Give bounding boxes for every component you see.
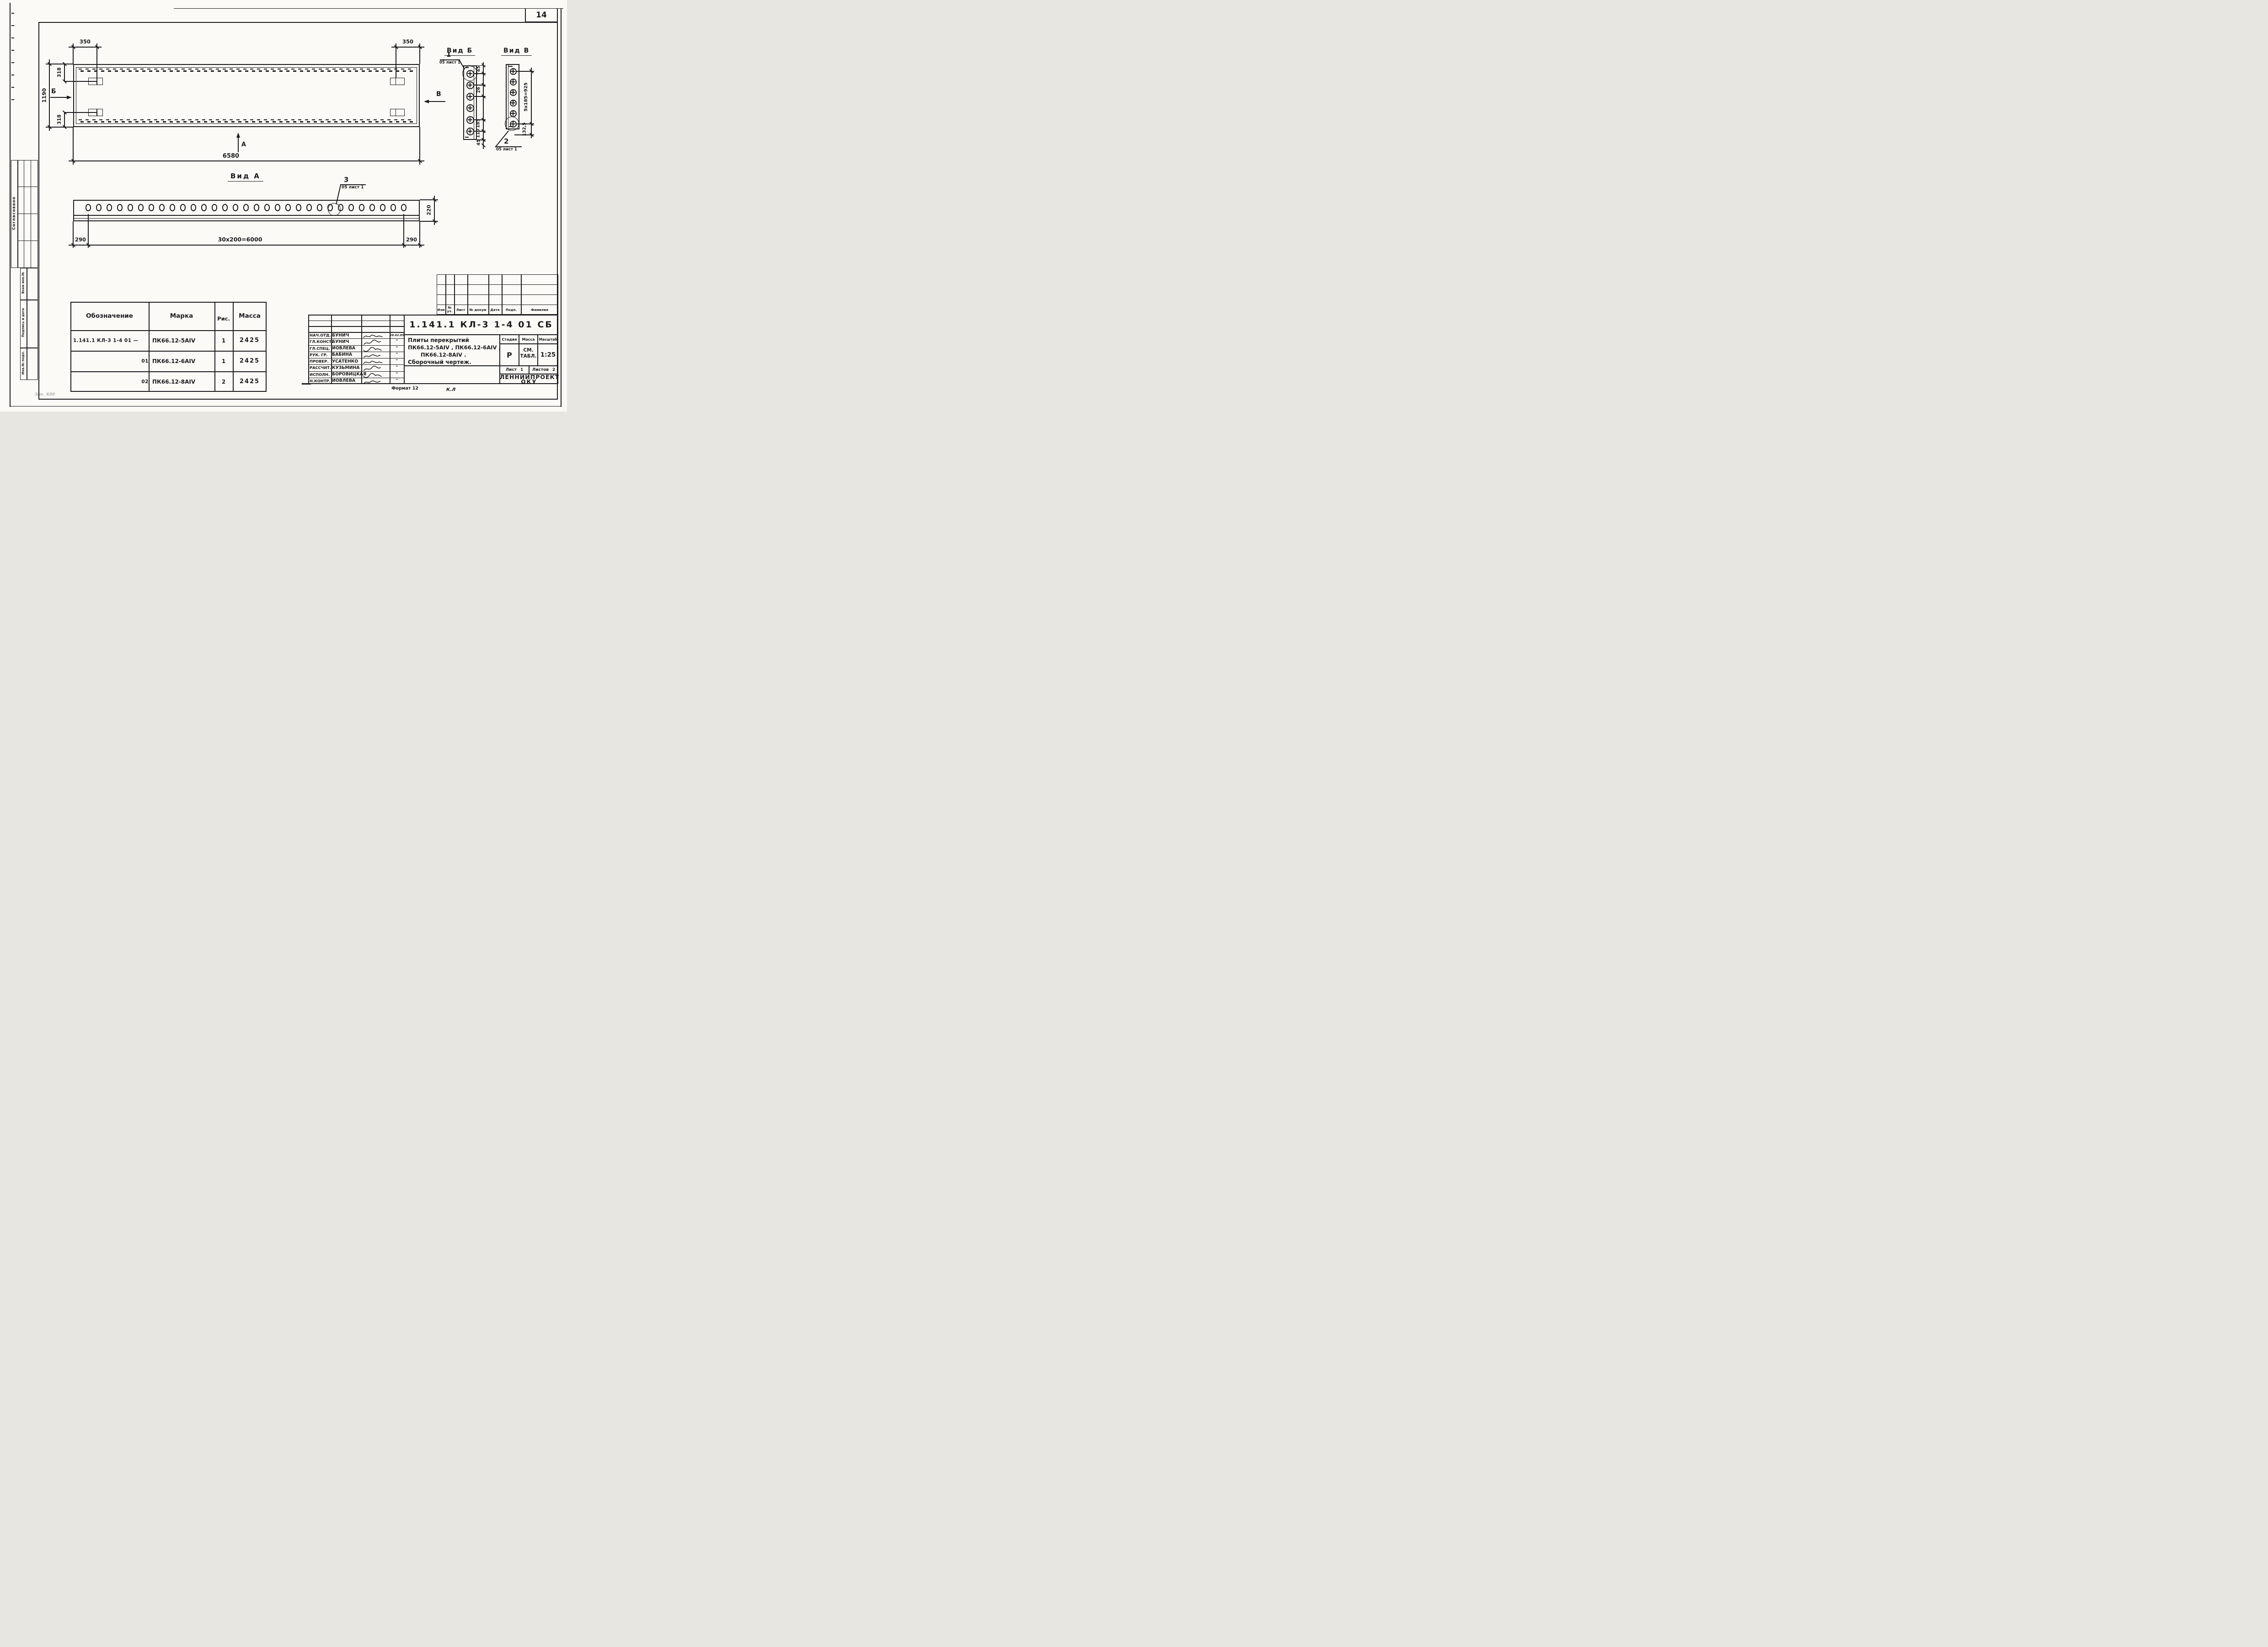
vid-a-hole — [149, 204, 155, 211]
sheet-edge-bottom — [10, 406, 561, 406]
staff-role: РУК. ГР. — [310, 352, 331, 358]
sheet-edge-top — [174, 8, 563, 9]
vid-a-hole — [96, 204, 102, 211]
staff-date: " — [390, 338, 404, 345]
sidebar-inv-divider — [27, 348, 27, 380]
dim-350-right: 350 — [396, 39, 420, 45]
staff-name: БУНИЧ — [332, 338, 360, 345]
staff-date: " — [390, 352, 404, 358]
binding-mark — [11, 25, 14, 26]
staff-name: ИОВЛЕВА — [332, 345, 360, 352]
tb-sheets-label: Листов — [532, 368, 549, 372]
dim-318-top: 318 — [57, 61, 62, 84]
vid-b-dim-label: 45 — [476, 134, 481, 152]
detail-2-ref: 05 лист 1 — [496, 148, 517, 152]
parts-cell: 1.141.1 КЛ-3 1-4 01 — — [70, 330, 151, 351]
tb-doc-name-line: Сборочный чертеж. — [408, 358, 497, 366]
lifting-loop — [390, 109, 405, 116]
tb-mass-label: Масса — [519, 335, 538, 344]
vid-v-dim-pitch: 5х185=925 — [524, 79, 529, 115]
detail-1-ref: 05 лист 1 — [439, 61, 460, 65]
vid-a-hole — [170, 204, 176, 211]
staff-role: Н.КОНТР. — [310, 378, 331, 384]
vid-a-hole — [128, 204, 134, 211]
revision-header: Подп. — [502, 305, 521, 315]
vid-b-hole — [466, 81, 474, 89]
parts-cell: 2425 — [233, 351, 267, 371]
section-arrow-b-head — [67, 96, 72, 99]
vid-a-dim-pitch: 30х200=6000 — [213, 237, 267, 243]
dim-line — [49, 59, 50, 131]
section-label-b: Б — [51, 88, 56, 95]
plan-slab-inner-line — [76, 67, 417, 124]
revision-header: Фамилия — [521, 305, 558, 315]
parts-cell: 1 — [214, 330, 233, 351]
dim-line — [73, 127, 73, 165]
detail-1-number: 1 — [446, 51, 451, 58]
vid-v-hole — [510, 79, 517, 86]
tb-sheet-label: Лист — [506, 368, 517, 372]
dim-line — [69, 245, 424, 246]
tb-stage-label: Стадия — [500, 335, 519, 344]
vid-b-hole — [466, 104, 474, 112]
parts-cell: ПК66.12-8АIV — [149, 371, 218, 392]
vid-a-title: Вид А — [228, 173, 263, 182]
dim-line — [64, 112, 64, 127]
dim-line — [64, 64, 64, 81]
parts-cell: ПК66.12-5АIV — [149, 330, 218, 351]
staff-date: " — [390, 378, 404, 384]
vid-b-corner-dash-bottom — [465, 137, 469, 138]
detail-2-number: 2 — [504, 138, 508, 145]
vid-v-corner-dash-top — [508, 66, 513, 67]
vid-a-hole — [201, 204, 207, 211]
revision-row-line — [437, 294, 558, 295]
staff-date: " — [390, 364, 404, 371]
staff-name: УСАТЕНКО — [332, 358, 360, 364]
vid-a-hole — [306, 204, 312, 211]
dim-line — [88, 214, 88, 248]
section-label-a: А — [241, 142, 246, 148]
vid-a-hole — [348, 204, 354, 211]
section-arrow-b-line — [50, 97, 67, 98]
dim-line — [396, 43, 396, 78]
tb-doc-name-line: ПК66.12-5АIV , ПК66.12-6АIV , — [408, 344, 497, 351]
dim-line — [419, 127, 420, 165]
illegible-stamp: Зак. 620 — [35, 392, 55, 397]
parts-cell: 2425 — [233, 371, 267, 392]
staff-empty-row-line — [308, 326, 404, 326]
tb-doc-name-line: Плиты перекрытий — [408, 337, 497, 344]
binding-mark — [11, 62, 14, 63]
vid-a-hole — [275, 204, 281, 211]
tb-mass-line2: ТАБЛ. — [519, 353, 538, 359]
binding-mark — [11, 75, 14, 75]
sheet-code-note: К.Л — [446, 388, 455, 392]
staff-name: БАБИНА — [332, 352, 360, 358]
vid-a-hole — [191, 204, 197, 211]
vid-b-dim-label: 45 — [476, 60, 481, 78]
parts-cell: 2425 — [233, 330, 267, 351]
section-arrow-v-line — [429, 101, 445, 102]
staff-role: ГЛ.СПЕЦ. — [310, 345, 331, 352]
dim-1190: 1190 — [42, 73, 47, 118]
vid-v-hole — [510, 89, 517, 96]
vid-b-hole — [466, 128, 474, 135]
section-label-v: В — [436, 91, 441, 97]
sheet-edge-right — [561, 8, 562, 407]
tb-stage-value: Р — [500, 344, 519, 366]
revision-header: № уч. — [445, 305, 454, 315]
staff-name: БОРОВИЦКАЯ — [332, 371, 360, 378]
castellation-pattern-top — [79, 69, 414, 72]
vid-v-hole — [510, 100, 517, 107]
vid-a-hole — [254, 204, 260, 211]
vid-a-dim-height: 220 — [427, 199, 432, 222]
vid-a-hole — [359, 204, 365, 211]
staff-date: 28.02.85 — [390, 332, 404, 338]
sidebar-podpis-label: Подпись и дата — [22, 300, 25, 346]
sidebar-vzam-divider — [27, 268, 27, 300]
sidebar-inv-label: Инв.№ подп. — [22, 340, 25, 386]
staff-empty-row-line — [308, 321, 404, 321]
vid-v-hole — [510, 110, 517, 117]
dim-line — [69, 160, 424, 161]
parts-header-designation: Обозначение — [70, 302, 149, 330]
staff-name: ИОВЛЕВА — [332, 378, 360, 384]
dim-line — [531, 68, 532, 138]
format-note: Формат 12 — [391, 386, 418, 391]
section-arrow-a-head — [236, 133, 240, 138]
vid-a-hole — [222, 204, 228, 211]
vid-a-hole — [159, 204, 165, 211]
dim-line — [483, 62, 484, 149]
dim-line — [403, 214, 404, 248]
sidebar-vzam-label: Взам инв.№ — [22, 260, 25, 306]
vid-v-title: Вид В — [501, 48, 532, 56]
staff-date: " — [390, 345, 404, 352]
tb-designation: 1.141.1 КЛ-3 1-4 01 СБ — [404, 315, 558, 335]
dim-350-left: 350 — [73, 39, 97, 45]
vid-a-hole — [296, 204, 302, 211]
revision-header: Лист — [454, 305, 467, 315]
tb-sheets-cell: Листов 2 — [529, 366, 558, 374]
vid-a-hole — [86, 204, 91, 211]
staff-role: НАЧ.ОТД. — [310, 332, 331, 338]
vid-a-hole — [243, 204, 249, 211]
binding-mark — [11, 87, 14, 88]
tb-sheets-value: 2 — [552, 368, 555, 372]
staff-role: ПРОВЕР. — [310, 358, 331, 364]
parts-cell: 2 — [214, 371, 233, 392]
parts-cell: 01 — [70, 351, 153, 371]
vid-v-hole — [510, 68, 517, 75]
vid-a-hole — [317, 204, 323, 211]
parts-header-mark: Марка — [149, 302, 214, 330]
detail-3-ref: 05 лист 1 — [342, 186, 364, 190]
parts-cell: ПК66.12-6АIV — [149, 351, 218, 371]
staff-signature — [362, 378, 389, 387]
lifting-loop — [390, 78, 405, 85]
vid-a-hole — [285, 204, 291, 211]
tb-mass-value: СМ. ТАБЛ. — [519, 348, 538, 359]
vid-a-dim-right: 290 — [403, 237, 420, 243]
tb-sheet-value: 1 — [520, 368, 523, 372]
binding-mark — [11, 50, 14, 51]
vid-a-hole — [264, 204, 270, 211]
drawing-sheet: 14 Согласовано Взам инв.№ Подпись и дата… — [0, 0, 567, 412]
dim-line — [64, 81, 97, 81]
parts-cell: 1 — [214, 351, 233, 371]
staff-name: КУЗЬМИНА — [332, 364, 360, 371]
staff-role: ИСПОЛН. — [310, 371, 331, 378]
vid-v-dim-bottom: 132,5 — [522, 118, 527, 141]
staff-name: БУНИЧ — [332, 332, 360, 338]
tb-doc-name: Плиты перекрытий ПК66.12-5АIV , ПК66.12-… — [408, 337, 497, 366]
binding-mark — [11, 37, 14, 38]
vid-a-flange-line — [74, 215, 419, 216]
vid-a-flange-line2 — [74, 218, 419, 219]
staff-role: РАССЧИТ. — [310, 364, 331, 371]
vid-a-hole — [212, 204, 218, 211]
vid-a-hole — [117, 204, 123, 211]
parts-header-fig: Рис. — [214, 307, 233, 330]
binding-mark — [11, 13, 14, 14]
page-number-box: 14 — [525, 9, 558, 22]
revision-header: Изм — [437, 305, 445, 315]
detail-3-number: 3 — [344, 176, 348, 183]
staff-date: " — [390, 371, 404, 378]
dim-line — [96, 43, 97, 78]
detail-circle-3 — [328, 203, 341, 216]
vid-a-hole — [401, 204, 407, 211]
tb-org: ЛЕННИИПРОЕКТ ОКУ — [500, 374, 558, 385]
staff-date: " — [390, 358, 404, 364]
vid-a-hole — [233, 204, 239, 211]
castellation-pattern-bottom — [79, 119, 414, 123]
sidebar-agreed-grid — [17, 160, 38, 268]
revision-header: № докум — [467, 305, 488, 315]
vid-a-dim-left: 290 — [72, 237, 89, 243]
dim-318-bottom: 318 — [57, 108, 62, 131]
tb-scale-value: 1:25 — [538, 344, 558, 366]
tb-scale-label: Масштаб — [538, 335, 558, 344]
tb-sheet-cell: Лист 1 — [500, 366, 529, 374]
vid-b-hole — [466, 93, 474, 101]
tb-doc-name-line: ПК66.12-8АIV . — [408, 351, 497, 358]
binding-mark — [11, 99, 14, 100]
vid-a-hole — [380, 204, 386, 211]
section-arrow-v-head — [424, 100, 429, 103]
vid-a-hole — [180, 204, 186, 211]
vid-a-hole — [369, 204, 375, 211]
section-arrow-a-line — [238, 137, 239, 152]
parts-cell: 02 — [70, 371, 153, 392]
dim-6580: 6580 — [215, 153, 247, 159]
vid-a-hole — [390, 204, 396, 211]
sidebar-podpis-divider — [27, 300, 27, 348]
revision-row-line — [437, 284, 558, 285]
staff-role: ГЛ.КОНСТ. — [310, 338, 331, 345]
sidebar-agreed-label: Согласовано — [12, 186, 16, 241]
parts-header-mass: Масса — [233, 302, 267, 330]
tb-mass-line1: СМ. — [519, 348, 538, 353]
sheet-edge-left — [10, 3, 11, 407]
dim-line — [64, 112, 97, 112]
page-number: 14 — [536, 11, 547, 19]
revision-header: Дата — [488, 305, 502, 315]
vid-a-hole — [107, 204, 112, 211]
vid-b-hole — [466, 116, 474, 124]
vid-a-hole — [138, 204, 144, 211]
